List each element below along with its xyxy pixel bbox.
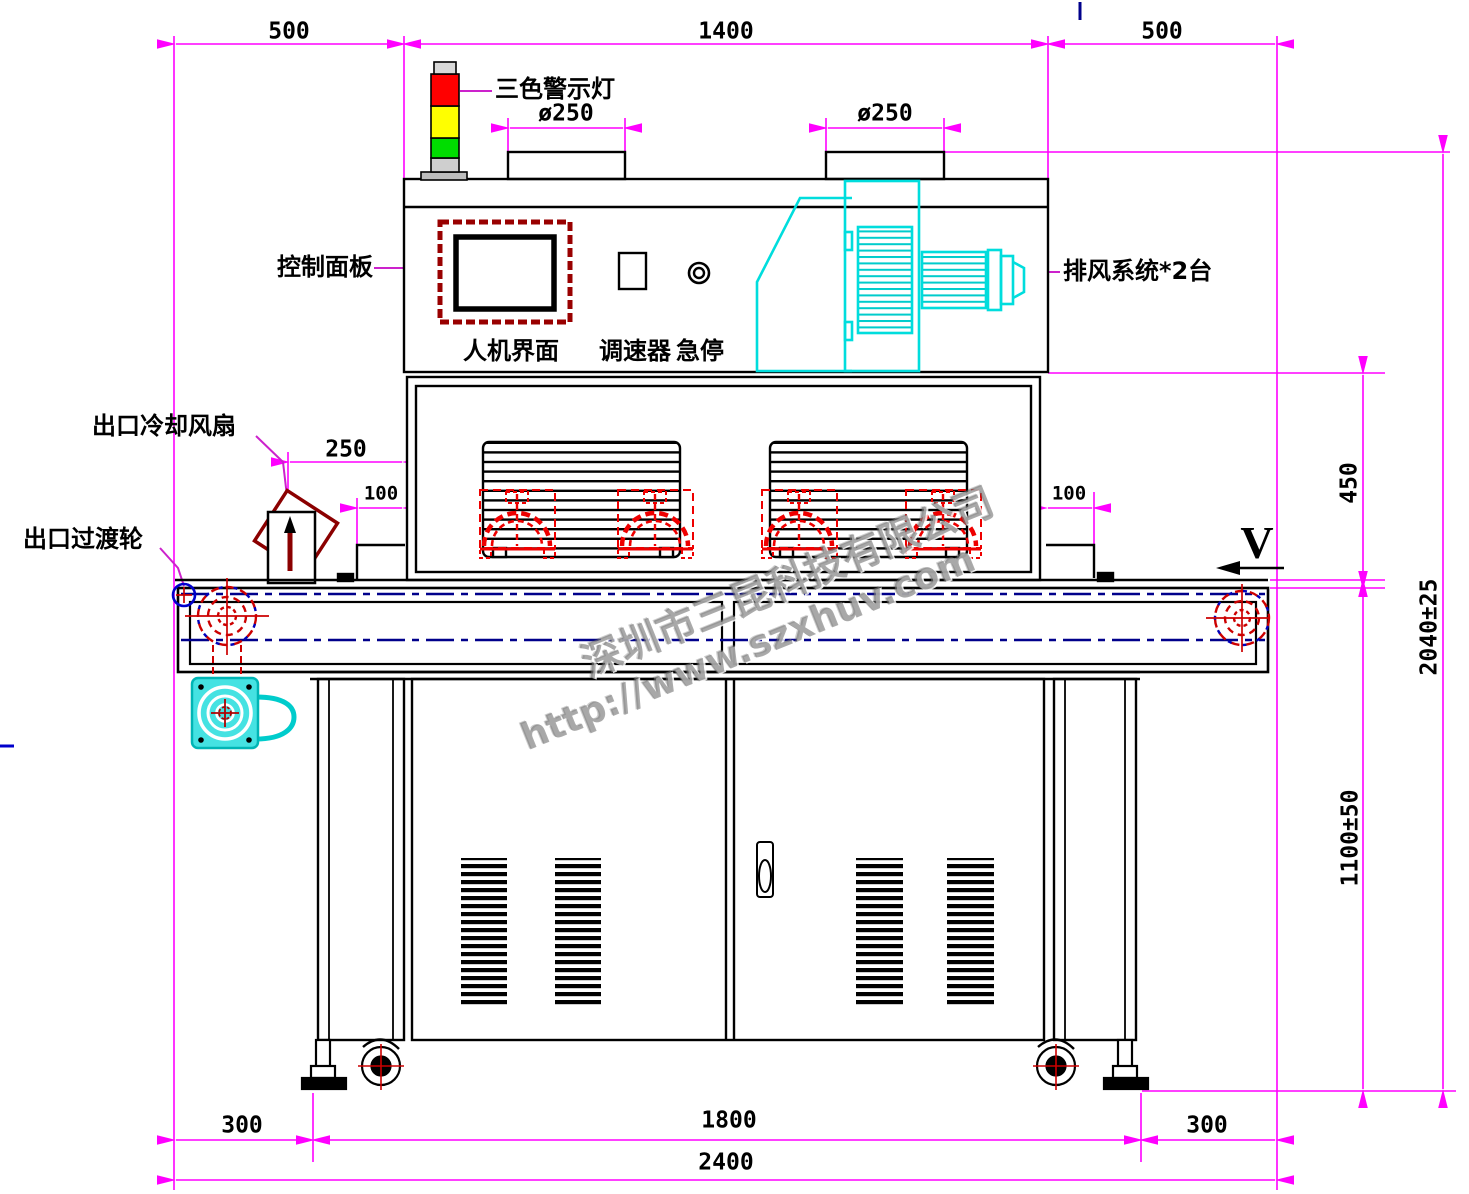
dim-duct-right-dia250: ø250 bbox=[857, 103, 912, 126]
label-outlet-cooling-fan: 出口冷却风扇 bbox=[92, 414, 236, 438]
lamp-housing-left bbox=[483, 442, 680, 557]
drawing-canvas: 500 1400 500 ø250 ø250 250 100 100 450 2… bbox=[0, 0, 1469, 1194]
outlet-transition-wheel bbox=[173, 584, 195, 606]
dim-step-right-100: 100 bbox=[1052, 485, 1086, 504]
feet-and-casters bbox=[302, 1039, 1148, 1090]
vent-grille bbox=[555, 858, 601, 1008]
lower-cabinet bbox=[310, 672, 1140, 1040]
blower-motor bbox=[922, 252, 986, 308]
caster-right bbox=[1033, 1039, 1079, 1090]
speed-controller-knob bbox=[619, 253, 646, 289]
dim-duct-left-dia250: ø250 bbox=[538, 103, 593, 126]
cabinet-leg-right bbox=[1054, 679, 1136, 1040]
tower-base-pad bbox=[421, 172, 467, 180]
warning-light-tower bbox=[421, 62, 467, 180]
label-hmi: 人机界面 bbox=[463, 339, 559, 363]
dim-table-height-1100: 1100±50 bbox=[1340, 790, 1363, 887]
dim-hood-height-450: 450 bbox=[1339, 462, 1362, 504]
label-speed-controller: 调速器 bbox=[599, 339, 671, 363]
tower-base bbox=[431, 158, 459, 172]
dim-fan-offset-250: 250 bbox=[325, 439, 367, 462]
hmi-screen bbox=[456, 237, 554, 309]
label-emergency-stop: 急停 bbox=[676, 339, 724, 363]
tower-cap bbox=[434, 62, 456, 74]
dim-top-right-500: 500 bbox=[1141, 21, 1183, 44]
exhaust-duct-right bbox=[826, 152, 944, 179]
dim-top-center-1400: 1400 bbox=[698, 21, 753, 44]
leveling-foot-right bbox=[1104, 1040, 1148, 1089]
vent-grille bbox=[947, 858, 994, 1008]
dim-bottom-total-2400: 2400 bbox=[698, 1152, 753, 1175]
conveyor-drive-motor bbox=[192, 645, 294, 748]
dim-overall-height-2040: 2040±25 bbox=[1419, 579, 1442, 676]
warn-yellow-segment bbox=[431, 106, 459, 138]
dim-step-left-100: 100 bbox=[364, 485, 398, 504]
caster-left bbox=[358, 1039, 404, 1090]
label-exhaust-system: 排风系统*2台 bbox=[1063, 259, 1212, 283]
dim-bottom-left-300: 300 bbox=[221, 1115, 263, 1138]
outlet-cooling-fan bbox=[255, 491, 338, 583]
exhaust-duct-left bbox=[508, 152, 625, 179]
label-conveyor-direction: V bbox=[1240, 520, 1273, 566]
vent-grille bbox=[461, 858, 507, 1008]
warn-red-segment bbox=[431, 74, 459, 106]
dim-bottom-right-300: 300 bbox=[1186, 1115, 1228, 1138]
vent-grille bbox=[856, 858, 903, 1008]
label-control-panel: 控制面板 bbox=[277, 255, 373, 279]
dim-top-left-500: 500 bbox=[268, 21, 310, 44]
dim-bottom-center-1800: 1800 bbox=[701, 1110, 756, 1133]
cabinet-leg-left bbox=[318, 679, 404, 1040]
warn-green-segment bbox=[431, 138, 459, 158]
label-warning-light: 三色警示灯 bbox=[495, 77, 615, 101]
label-outlet-transition-wheel: 出口过渡轮 bbox=[23, 527, 143, 551]
pulley-left bbox=[185, 578, 269, 655]
blower-core bbox=[858, 227, 912, 333]
leveling-foot-left bbox=[302, 1040, 346, 1089]
